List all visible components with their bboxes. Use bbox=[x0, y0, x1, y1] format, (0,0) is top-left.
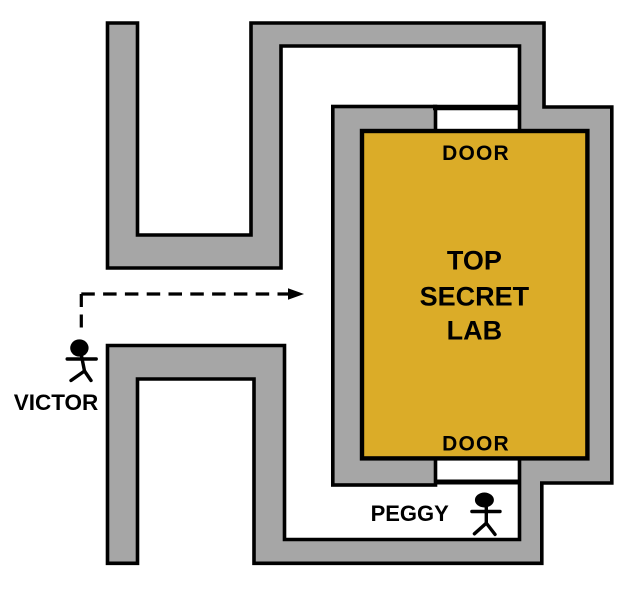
svg-text:DOOR: DOOR bbox=[442, 142, 510, 165]
svg-text:SECRET: SECRET bbox=[420, 281, 530, 311]
svg-text:DOOR: DOOR bbox=[442, 433, 510, 456]
svg-text:VICTOR: VICTOR bbox=[14, 390, 99, 415]
svg-text:TOP: TOP bbox=[447, 245, 502, 275]
svg-text:LAB: LAB bbox=[447, 316, 503, 346]
svg-text:PEGGY: PEGGY bbox=[371, 501, 450, 526]
